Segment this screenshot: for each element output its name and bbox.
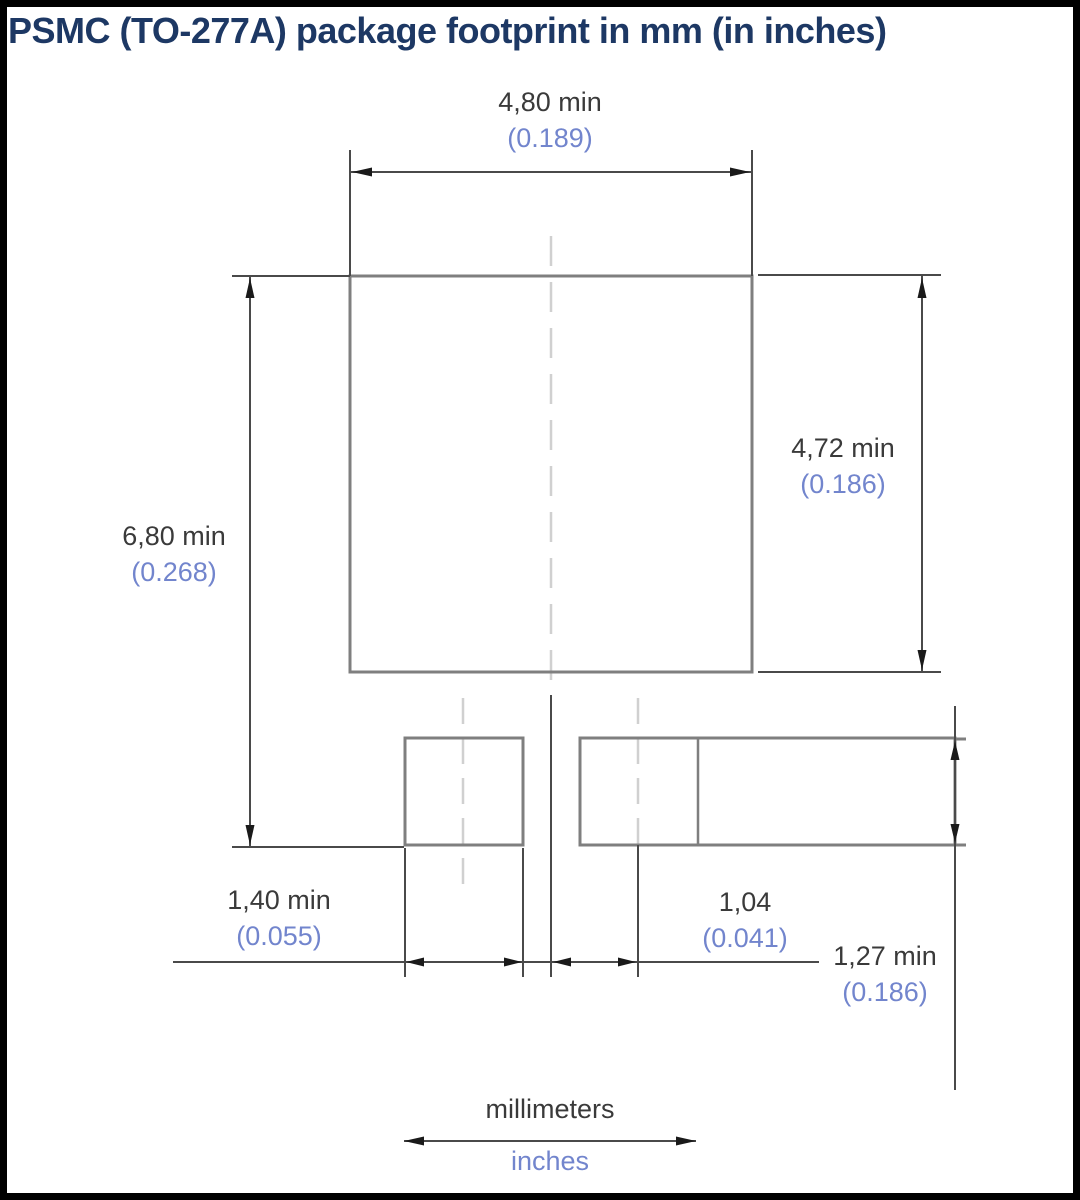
- label-pad-width: 4,80 min (0.189): [440, 84, 660, 156]
- label-lead-width: 1,40 min (0.055): [169, 882, 389, 954]
- arrow-lead-length-bottom: [951, 824, 960, 843]
- overall-height-mm: 6,80 min: [64, 518, 284, 554]
- pad-width-mm: 4,80 min: [440, 84, 660, 120]
- footprint-drawing: [0, 0, 1080, 1200]
- arrow-legend-left: [404, 1137, 424, 1146]
- label-overall-height: 6,80 min (0.268): [64, 518, 284, 590]
- arrow-lead-width-left: [406, 958, 424, 967]
- lead-width-in: (0.055): [169, 918, 389, 954]
- legend-inches: inches: [425, 1146, 675, 1177]
- lead-length-mm: 1,27 min: [775, 938, 995, 974]
- pad-outlines: [350, 276, 966, 845]
- label-lead-length: 1,27 min (0.186): [775, 938, 995, 1010]
- arrow-lead-width-right: [504, 958, 522, 967]
- arrow-width-right: [730, 168, 750, 177]
- pad-width-in: (0.189): [440, 120, 660, 156]
- arrow-legend-right: [676, 1137, 696, 1146]
- lead-length-in: (0.186): [775, 974, 995, 1010]
- footprint-figure: PSMC (TO-277A) package footprint in mm (…: [0, 0, 1080, 1200]
- legend-millimeters: millimeters: [425, 1094, 675, 1142]
- pad-height-mm: 4,72 min: [733, 430, 953, 466]
- right-lead-pad: [580, 738, 955, 845]
- arrow-overall-bottom: [246, 825, 255, 845]
- pad-height-in: (0.186): [733, 466, 953, 502]
- arrow-lead-offset-left: [553, 958, 571, 967]
- arrow-width-left: [352, 168, 372, 177]
- lead-offset-mm: 1,04: [635, 884, 855, 920]
- overall-height-in: (0.268): [64, 554, 284, 590]
- arrow-height-top: [918, 278, 927, 298]
- label-pad-height: 4,72 min (0.186): [733, 430, 953, 502]
- arrow-overall-top: [246, 278, 255, 298]
- arrow-lead-length-top: [951, 741, 960, 760]
- lead-width-mm: 1,40 min: [169, 882, 389, 918]
- units-legend: millimeters inches: [425, 1094, 675, 1177]
- arrow-lead-offset-right: [618, 958, 636, 967]
- arrow-height-bottom: [918, 650, 927, 670]
